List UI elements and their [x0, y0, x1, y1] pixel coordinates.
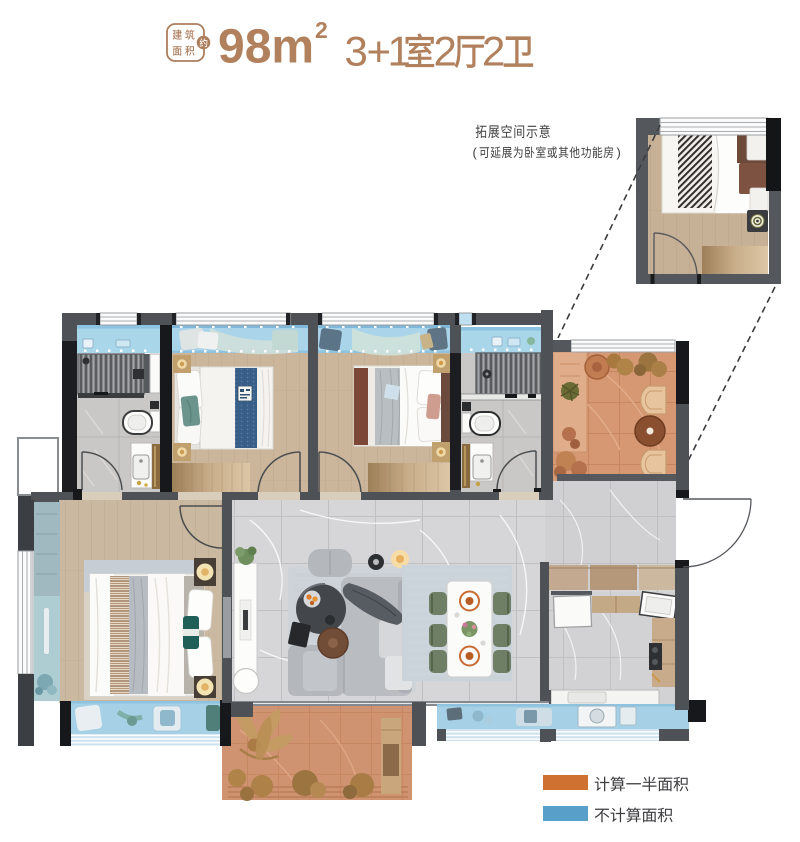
- svg-text:2: 2: [434, 28, 457, 75]
- svg-text:1: 1: [388, 28, 411, 75]
- svg-text:3: 3: [345, 28, 368, 75]
- svg-text:2: 2: [315, 17, 328, 43]
- svg-text:98m: 98m: [218, 21, 314, 74]
- svg-text:): ): [617, 145, 621, 160]
- svg-text:(: (: [473, 145, 478, 160]
- svg-text:2: 2: [482, 28, 505, 75]
